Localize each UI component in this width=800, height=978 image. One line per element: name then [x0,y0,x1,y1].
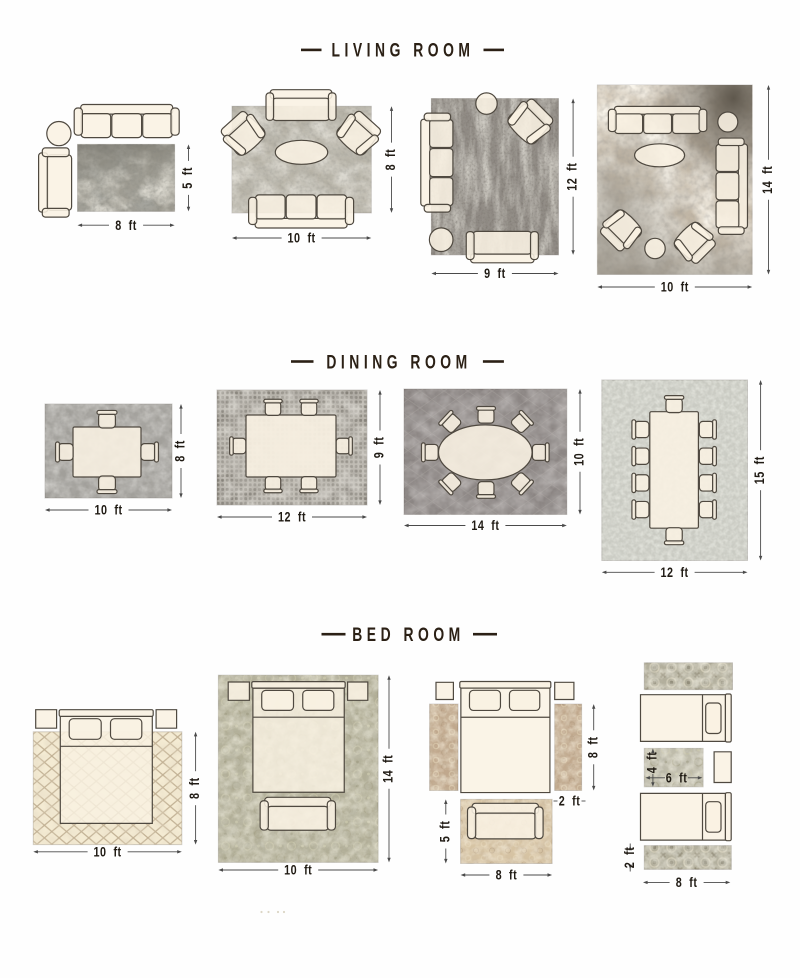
svg-text:9 ft: 9 ft [484,266,506,281]
svg-text:2 ft: 2 ft [559,793,581,808]
svg-text:LIVING ROOM: LIVING ROOM [332,39,475,61]
svg-text:8 ft: 8 ft [115,218,137,233]
svg-text:8 ft: 8 ft [187,777,202,799]
svg-text:4 ft: 4 ft [644,752,659,774]
svg-text:12 ft: 12 ft [661,565,689,580]
svg-text:6 ft: 6 ft [666,770,688,785]
svg-text:14 ft: 14 ft [760,166,775,194]
svg-text:15 ft: 15 ft [752,456,767,484]
svg-text:BED ROOM: BED ROOM [352,624,464,646]
svg-text:2 ft: 2 ft [622,847,637,869]
svg-text:10 ft: 10 ft [288,231,316,246]
svg-text:10 ft: 10 ft [94,503,122,518]
svg-text:10 ft: 10 ft [661,280,689,295]
svg-text:10 ft: 10 ft [94,844,122,859]
svg-text:DINING ROOM: DINING ROOM [326,351,471,373]
svg-text:8 ft: 8 ft [585,736,600,758]
svg-text:8 ft: 8 ft [383,149,398,171]
svg-text:10 ft: 10 ft [284,863,312,878]
svg-text:12 ft: 12 ft [565,163,580,191]
svg-text:5 ft: 5 ft [180,167,195,189]
svg-text:8 ft: 8 ft [172,440,187,462]
svg-text:8 ft: 8 ft [496,868,518,883]
svg-text:9 ft: 9 ft [371,437,386,459]
svg-text:8 ft: 8 ft [676,875,698,890]
svg-text:10 ft: 10 ft [571,438,586,466]
svg-text:12 ft: 12 ft [278,510,306,525]
svg-text:14 ft: 14 ft [380,755,395,783]
svg-text:14 ft: 14 ft [471,518,499,533]
svg-text:5 ft: 5 ft [437,821,452,843]
